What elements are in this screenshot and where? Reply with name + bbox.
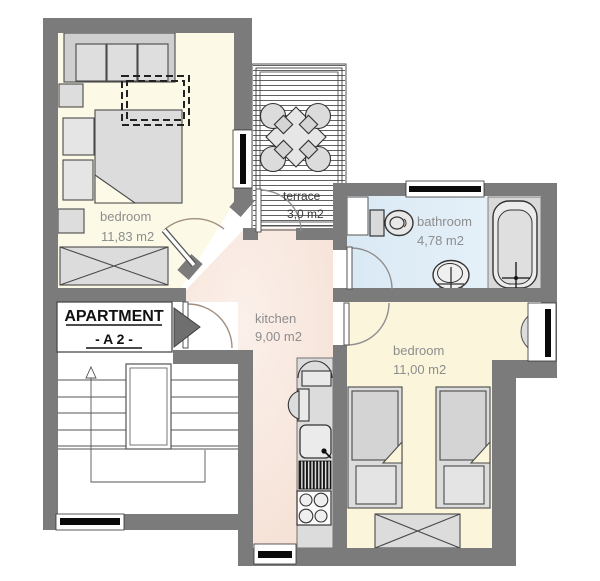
nightstand — [58, 209, 84, 233]
bedroom1-name: bedroom — [100, 209, 151, 224]
kitchen-name: kitchen — [255, 311, 296, 326]
wall — [333, 548, 516, 566]
wall — [43, 18, 58, 530]
stair-void — [126, 364, 171, 449]
terrace-area: 3,0 m2 — [287, 207, 324, 221]
wardrobe — [375, 514, 460, 548]
wall-diagonal — [235, 196, 249, 212]
wall — [333, 345, 347, 564]
wall — [43, 18, 252, 33]
wall — [57, 288, 186, 302]
terrace-name: terrace — [283, 189, 321, 203]
single-bed-1 — [348, 387, 402, 508]
bathroom-name: bathroom — [417, 214, 472, 229]
sofa-cushion — [76, 44, 106, 81]
bedroom2-window — [528, 303, 556, 361]
bedroom1-window — [233, 130, 252, 188]
wall — [234, 18, 252, 130]
side-table — [59, 84, 83, 107]
pillow — [63, 160, 93, 200]
bathroom-window — [406, 181, 484, 197]
bedroom2-name: bedroom — [393, 343, 444, 358]
wall — [333, 183, 347, 250]
apartment-number: - A 2 - — [95, 331, 133, 347]
duct-shaft — [347, 197, 368, 235]
apartment-title: APARTMENT — [64, 308, 163, 325]
kitchen-window — [254, 544, 296, 564]
floor-plan-page: APARTMENT - A 2 - bedroom 11,83 m2 terra… — [0, 0, 600, 581]
bedroom1-area: 11,83 m2 — [101, 229, 154, 244]
wall — [238, 350, 253, 530]
terrace-table-set — [261, 104, 331, 172]
stairwell-window — [56, 514, 124, 530]
sofa-cushion — [138, 44, 168, 81]
wardrobe — [60, 247, 168, 285]
terrace — [252, 64, 346, 230]
drainboard — [299, 461, 331, 489]
bedroom2-area: 11,00 m2 — [393, 362, 446, 377]
toilet — [370, 210, 413, 236]
pillow — [63, 118, 94, 155]
floor-plan: APARTMENT - A 2 - bedroom 11,83 m2 terra… — [0, 0, 600, 581]
wall — [492, 360, 516, 566]
bathroom-area: 4,78 m2 — [417, 233, 464, 248]
kitchen-sink — [299, 425, 331, 489]
stove — [297, 491, 331, 525]
wall — [333, 288, 557, 302]
single-bed-2 — [436, 387, 490, 508]
bathtub — [488, 197, 541, 294]
kitchen-area: 9,00 m2 — [255, 329, 302, 344]
